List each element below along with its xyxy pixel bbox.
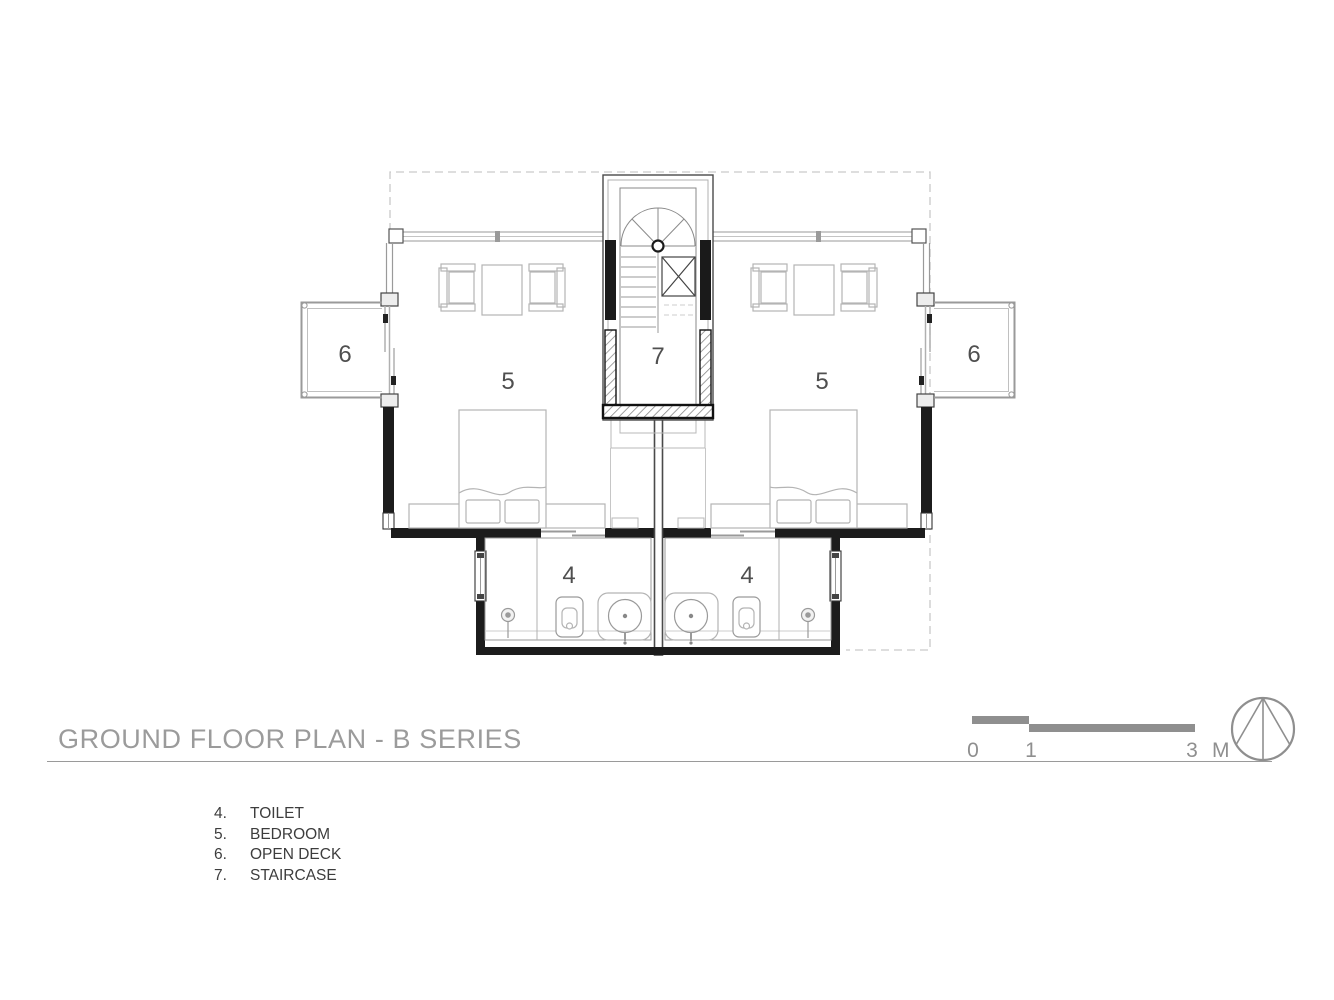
legend-item-toilet: 4. TOILET — [214, 804, 341, 825]
scale-bar: 0 1 3 M — [967, 716, 1229, 762]
title-underline — [47, 761, 1272, 762]
bedroom-left-furniture — [409, 264, 605, 528]
wall-solid — [383, 407, 394, 513]
room-legend: 4. TOILET 5. BEDROOM 6. OPEN DECK 7. STA… — [214, 804, 341, 886]
party-wall — [655, 418, 663, 655]
stair-newel-post — [653, 241, 664, 252]
legend-number: 4. — [214, 804, 250, 825]
floor-plan-drawing: 5 5 6 6 7 4 4 0 1 3 M — [0, 0, 1334, 1000]
page-title: GROUND FLOOR PLAN - B SERIES — [58, 724, 522, 755]
legend-item-bedroom: 5. BEDROOM — [214, 825, 341, 846]
legend-item-open-deck: 6. OPEN DECK — [214, 845, 341, 866]
window-mullion — [816, 231, 821, 242]
pillow — [466, 500, 500, 523]
table — [482, 265, 522, 315]
wc — [556, 597, 583, 637]
toilet-left — [475, 534, 661, 655]
room-label-toilet-left: 4 — [562, 562, 575, 589]
pillow — [816, 500, 850, 523]
room-label-bedroom-left: 5 — [501, 368, 514, 395]
left-exterior-wall — [381, 243, 398, 529]
pillow — [505, 500, 539, 523]
table — [794, 265, 834, 315]
legend-label: BEDROOM — [250, 825, 330, 846]
legend-number: 6. — [214, 845, 250, 866]
toilet-right — [655, 534, 841, 655]
bedroom-right-furniture — [711, 264, 907, 528]
stair-bottom-wall — [603, 405, 713, 418]
legend-label: TOILET — [250, 804, 304, 825]
staircase-tower — [603, 175, 713, 420]
legend-number: 5. — [214, 825, 250, 846]
shower-head — [502, 609, 515, 639]
stair-void-box — [662, 257, 695, 296]
wc — [733, 597, 760, 637]
pillow — [777, 500, 811, 523]
window-mullion — [495, 231, 500, 242]
legend-label: OPEN DECK — [250, 845, 341, 866]
room-label-toilet-right: 4 — [740, 562, 753, 589]
scale-tick-3: 3 — [1186, 739, 1198, 762]
scale-tick-0: 0 — [967, 739, 979, 762]
washbasin — [598, 593, 651, 645]
room-label-staircase: 7 — [651, 343, 664, 370]
legend-item-staircase: 7. STAIRCASE — [214, 866, 341, 887]
room-label-bedroom-right: 5 — [815, 368, 828, 395]
wall-solid — [921, 407, 932, 513]
room-label-deck-left: 6 — [338, 341, 351, 368]
north-arrow-icon — [1232, 698, 1294, 760]
washbasin — [665, 593, 718, 645]
room-label-deck-right: 6 — [967, 341, 980, 368]
scale-tick-1: 1 — [1025, 739, 1037, 762]
scale-unit: M — [1212, 739, 1230, 762]
legend-number: 7. — [214, 866, 250, 887]
legend-label: STAIRCASE — [250, 866, 337, 887]
drawing-sheet: 5 5 6 6 7 4 4 0 1 3 M GROUND FLOOR PLAN … — [0, 0, 1334, 1000]
shower-head — [802, 609, 815, 639]
right-exterior-wall — [917, 243, 934, 529]
